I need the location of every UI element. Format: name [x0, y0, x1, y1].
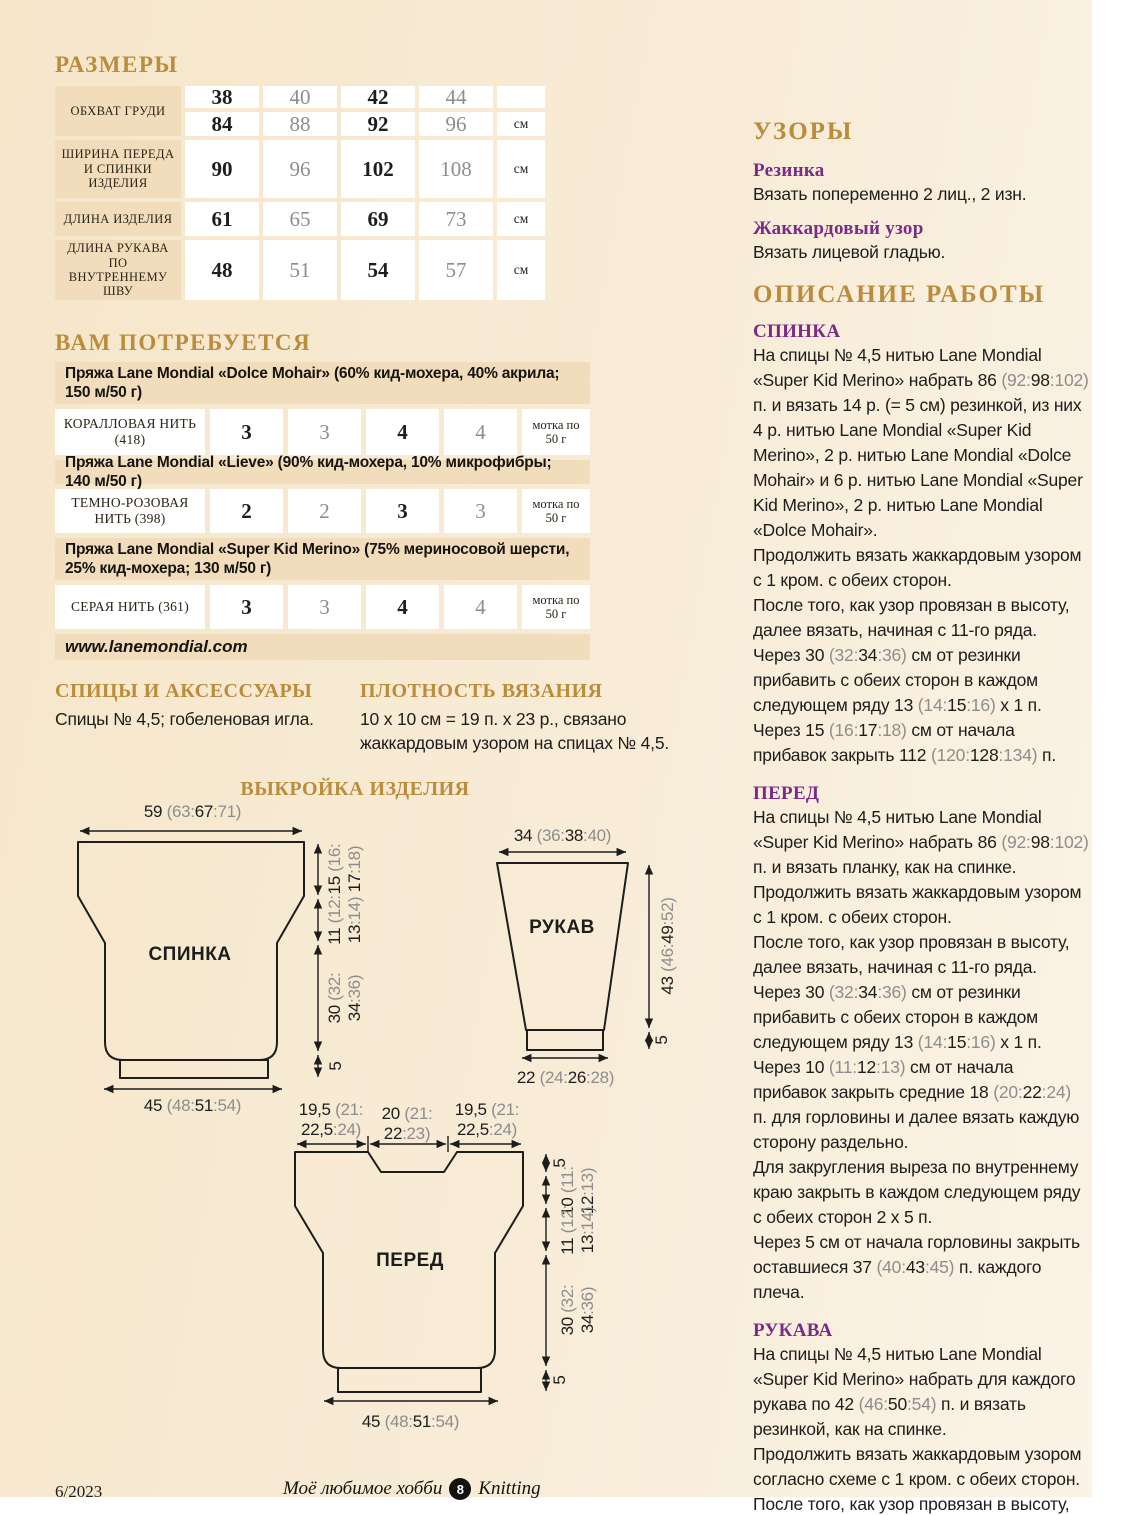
front-height-3: 11 (12: 13:14) [558, 1198, 598, 1262]
instruction-paragraph: Для закругления выреза по внутреннему кр… [753, 1155, 1089, 1230]
size-value: 92 [341, 112, 415, 136]
instruction-paragraph: Через 5 см от начала горловины закрыть о… [753, 1230, 1089, 1305]
instruction-paragraph: Продолжить вязать жаккардовым узором с 1… [753, 543, 1089, 593]
website-link: www.lanemondial.com [55, 634, 590, 660]
yarn-qty: 3 [444, 489, 517, 533]
paper-background: РАЗМЕРЫ ОБХВАТ ГРУДИ 38 40 42 44 84 88 9… [0, 0, 1092, 1497]
front-height-4: 30 (32: 34:36) [558, 1278, 598, 1342]
back-piece-label: СПИНКА [120, 944, 260, 966]
pattern-name: Резинка [753, 160, 1089, 182]
yarn-unit: мотка по 50 г [522, 489, 590, 533]
size-value: 61 [185, 202, 259, 236]
yarn-band: Пряжа Lane Mondial «Super Kid Merino» (7… [55, 538, 590, 580]
pattern-text: Вязать лицевой гладью. [753, 240, 1089, 265]
page-number-badge: 8 [449, 1478, 471, 1500]
section-name: РУКАВА [753, 1320, 1089, 1342]
yarn-qty: 3 [366, 489, 439, 533]
back-height-3: 30 (32: 34:36) [325, 966, 365, 1030]
sleeve-piece-label: РУКАВ [502, 917, 622, 939]
yarn-qty: 4 [366, 585, 439, 629]
back-height-2: 11 (12: 13:14) [325, 888, 365, 952]
section-name: ПЕРЕД [753, 783, 1089, 805]
pattern-name: Жаккардовый узор [753, 218, 1089, 240]
instruction-paragraph: На спицы № 4,5 нитью Lane Mondial «Super… [753, 343, 1089, 543]
instruction-paragraph: На спицы № 4,5 нитью Lane Mondial «Super… [753, 1342, 1089, 1442]
size-row-label: ДЛИНА РУКАВА ПО ВНУТРЕННЕМУ ШВУ [55, 240, 181, 300]
materials-table: Пряжа Lane Mondial «Dolce Mohair» (60% к… [55, 362, 600, 660]
yarn-label: КОРАЛЛОВАЯ НИТЬ (418) [55, 409, 205, 455]
back-height-4: 5 [326, 1051, 346, 1081]
sleeve-outline [497, 863, 628, 1050]
size-value: 84 [185, 112, 259, 136]
instruction-paragraph: Продолжить вязать жаккардовым узором сог… [753, 1442, 1089, 1492]
instruction-paragraph: После того, как узор провязан в высоту, … [753, 930, 1089, 980]
instruction-paragraph: Через 15 (16:17:18) см от начала прибаво… [753, 718, 1089, 768]
instruction-paragraph: Продолжить вязать жаккардовым узором с 1… [753, 880, 1089, 930]
size-value: 96 [419, 112, 493, 136]
footer-brand-name: Knitting [478, 1478, 540, 1500]
sleeve-height-2: 5 [652, 1025, 672, 1055]
yarn-qty: 2 [210, 489, 283, 533]
size-value: 73 [419, 202, 493, 236]
yarn-label: СЕРАЯ НИТЬ (361) [55, 585, 205, 629]
size-value: 51 [263, 240, 337, 300]
yarn-qty: 3 [210, 585, 283, 629]
materials-title: ВАМ ПОТРЕБУЕТСЯ [55, 330, 311, 356]
size-value: 88 [263, 112, 337, 136]
size-value: 108 [419, 140, 493, 198]
size-col-header: 44 [419, 86, 493, 108]
sleeve-top-dimension: 34 (36:38:40) [465, 826, 660, 846]
yarn-label: ТЕМНО-РОЗОВАЯ НИТЬ (398) [55, 489, 205, 533]
instructions-title: ОПИСАНИЕ РАБОТЫ [753, 281, 1089, 309]
instruction-paragraph: После того, как узор провязан в высоту, … [753, 1492, 1089, 1515]
section-name: СПИНКА [753, 321, 1089, 343]
size-value: 102 [341, 140, 415, 198]
right-column: УЗОРЫ Резинка Вязать попеременно 2 лиц.,… [753, 118, 1089, 1515]
size-value: 57 [419, 240, 493, 300]
size-unit: см [497, 240, 545, 300]
yarn-unit: мотка по 50 г [522, 585, 590, 629]
size-value: 96 [263, 140, 337, 198]
size-value: 48 [185, 240, 259, 300]
size-unit-cell-empty [497, 86, 545, 108]
yarn-unit: мотка по 50 г [522, 409, 590, 455]
instruction-paragraph: После того, как узор провязан в высоту, … [753, 593, 1089, 643]
gauge-title: ПЛОТНОСТЬ ВЯЗАНИЯ [360, 680, 603, 703]
yarn-qty: 3 [288, 409, 361, 455]
front-height-5: 5 [550, 1365, 570, 1395]
patterns-title: УЗОРЫ [753, 118, 1089, 146]
front-outline [295, 1152, 523, 1392]
size-row-label: ОБХВАТ ГРУДИ [55, 86, 181, 136]
yarn-band: Пряжа Lane Mondial «Dolce Mohair» (60% к… [55, 362, 590, 404]
size-unit: см [497, 140, 545, 198]
needles-text: Спицы № 4,5; гобеленовая игла. [55, 707, 345, 731]
yarn-qty: 4 [366, 409, 439, 455]
sizes-title: РАЗМЕРЫ [55, 52, 178, 78]
instruction-paragraph: Через 30 (32:34:36) см от резинки прибав… [753, 643, 1089, 718]
front-piece-label: ПЕРЕД [350, 1250, 470, 1272]
size-unit: см [497, 202, 545, 236]
instruction-paragraph: Через 10 (11:12:13) см от начала прибаво… [753, 1055, 1089, 1155]
front-top-right-dimension: 19,5 (21: 22,5:24) [437, 1100, 537, 1140]
front-bottom-dimension: 45 (48:51:54) [313, 1412, 508, 1432]
footer-issue: 6/2023 [55, 1482, 102, 1502]
size-value: 69 [341, 202, 415, 236]
yarn-qty: 4 [444, 585, 517, 629]
size-row-label: ДЛИНА ИЗДЕЛИЯ [55, 202, 181, 236]
gauge-text: 10 х 10 см = 19 п. х 23 р., связано жакк… [360, 707, 670, 755]
needles-title: СПИЦЫ И АКСЕССУАРЫ [55, 680, 312, 703]
footer-magazine-name: Моё любимое хобби [283, 1478, 442, 1500]
yarn-qty: 4 [444, 409, 517, 455]
size-col-header: 38 [185, 86, 259, 108]
size-value: 90 [185, 140, 259, 198]
yarn-qty: 2 [288, 489, 361, 533]
size-value: 54 [341, 240, 415, 300]
size-col-header: 42 [341, 86, 415, 108]
footer-brand: Моё любимое хобби 8 Knitting [283, 1478, 541, 1500]
size-row-label: ШИРИНА ПЕРЕДА И СПИНКИ ИЗДЕЛИЯ [55, 140, 181, 198]
sleeve-bottom-dimension: 22 (24:26:28) [468, 1068, 663, 1088]
yarn-band: Пряжа Lane Mondial «Lieve» (90% кид-мохе… [55, 460, 590, 484]
magazine-page: РАЗМЕРЫ ОБХВАТ ГРУДИ 38 40 42 44 84 88 9… [0, 0, 1130, 1515]
yarn-qty: 3 [210, 409, 283, 455]
pattern-text: Вязать попеременно 2 лиц., 2 изн. [753, 182, 1089, 207]
size-unit: см [497, 112, 545, 136]
sizes-table: ОБХВАТ ГРУДИ 38 40 42 44 84 88 92 96 см … [55, 86, 545, 300]
instruction-paragraph: Через 30 (32:34:36) см от резинки прибав… [753, 980, 1089, 1055]
sleeve-dimension-lines [499, 852, 649, 1058]
size-value: 65 [263, 202, 337, 236]
size-col-header: 40 [263, 86, 337, 108]
yarn-qty: 3 [288, 585, 361, 629]
back-top-dimension: 59 (63:67:71) [95, 802, 290, 822]
sleeve-height-1: 43 (46:49:52) [658, 886, 678, 1006]
instruction-paragraph: На спицы № 4,5 нитью Lane Mondial «Super… [753, 805, 1089, 880]
back-bottom-dimension: 45 (48:51:54) [95, 1096, 290, 1116]
